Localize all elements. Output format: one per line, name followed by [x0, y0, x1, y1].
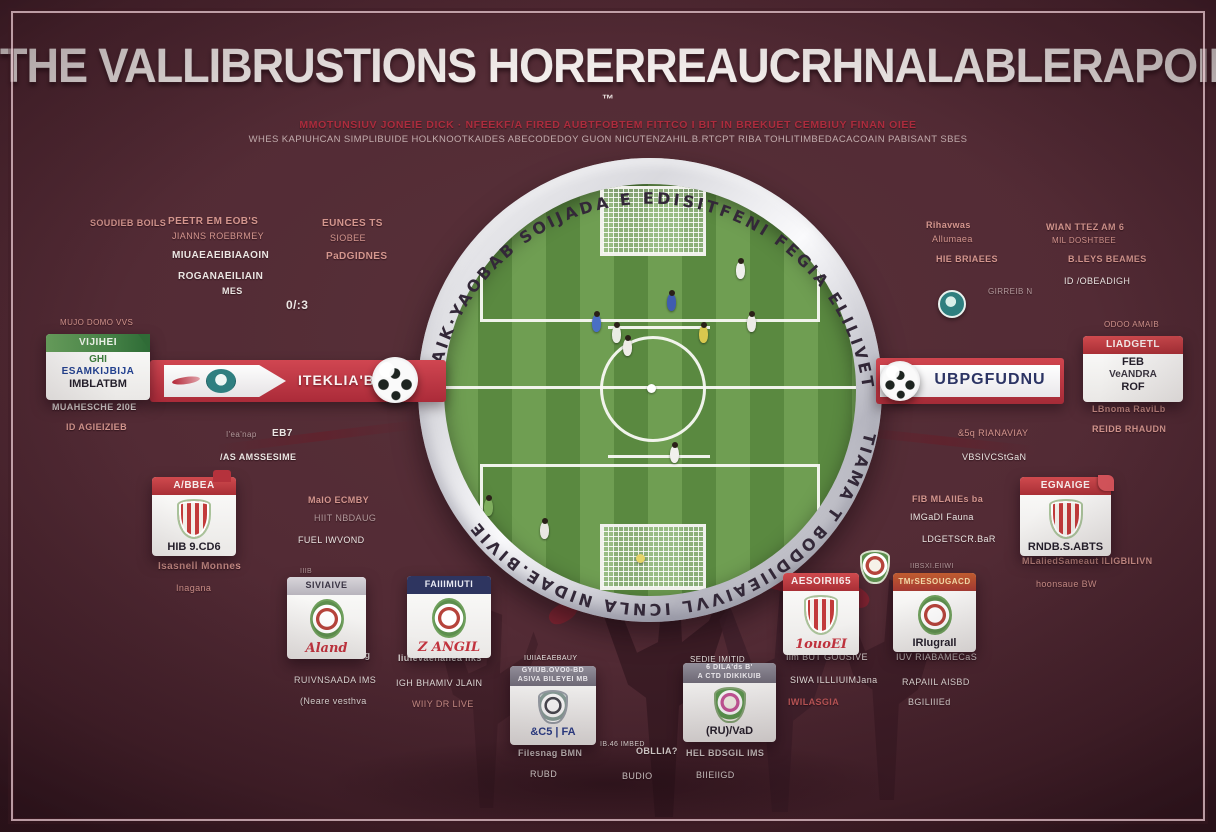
- card-header: VIJIHEI: [46, 334, 150, 352]
- card-faiiimiuti: FAIIIMIUTIZ ANGIL: [407, 576, 491, 658]
- poster-subtitle-gray: WHES KAPIUHCAN SIMPLIBUIDE HOLKNOOTKAIDE…: [0, 134, 1216, 145]
- card-aesoirii: AESOIRII651ouoEI: [783, 573, 859, 655]
- club-crest-icon: [177, 499, 211, 539]
- card-header-line: 6 DILA'ds B': [706, 664, 753, 673]
- trademark-symbol: ™: [602, 92, 614, 106]
- card-text-line: ROF: [1121, 381, 1144, 393]
- card-header-line: LIADGETL: [1106, 339, 1160, 352]
- card-header: 6 DILA'ds B'A CTD IDIKIKUIB: [683, 663, 776, 683]
- card-header: GYIUB.OVO0-BDASIVA BILEYEI MB: [510, 666, 596, 686]
- poster-title: THE VALLIBRUSTIONS HORERREAUCRHNALABLERA…: [0, 38, 1216, 94]
- card-dilads: 6 DILA'ds B'A CTD IDIKIKUIB(RU)/VaD: [683, 663, 776, 742]
- card-body: Z ANGIL: [407, 594, 491, 658]
- card-corner-fold: [213, 470, 231, 482]
- card-header-line: SIVIAIVE: [305, 580, 347, 591]
- card-body: IRIugraIl: [893, 591, 976, 652]
- card-body: (RU)/VaD: [683, 683, 776, 740]
- card-text-line: RNDB.S.ABTS: [1028, 541, 1103, 553]
- card-text-line: Z ANGIL: [418, 640, 480, 655]
- card-body: Aland: [287, 595, 366, 659]
- card-text-line: (RU)/VaD: [706, 725, 753, 737]
- card-body: &C5 | FA: [510, 686, 596, 741]
- card-siviaive: SIVIAIVEAland: [287, 577, 366, 659]
- club-crest-icon: [432, 598, 466, 638]
- card-text-line: VeANDRA: [1109, 369, 1157, 380]
- club-crest-icon: [714, 687, 746, 723]
- card-ajbea: A/BBEAHIB 9.CD6: [152, 477, 236, 556]
- card-header: FAIIIMIUTI: [407, 576, 491, 594]
- card-text-line: HIB 9.CD6: [167, 541, 220, 553]
- card-text-line: IRIugraIl: [912, 637, 956, 649]
- card-header-line: ASIVA BILEYEI MB: [518, 676, 589, 685]
- card-header: TMrSESOUGACD: [893, 573, 976, 591]
- poster-subtitle-red: MMOTUNSIUV JONEIE DICK · NFEEKF/A FIRED …: [0, 119, 1216, 131]
- card-corner-fold: [138, 334, 150, 350]
- card-header-line: GYIUB.OVO0-BD: [522, 667, 585, 676]
- card-text-line: IMBLATBM: [69, 378, 127, 390]
- card-body: 1ouoEI: [783, 591, 859, 655]
- card-header-line: A CTD IDIKIKUIB: [698, 673, 762, 682]
- card-vijihei: VIJIHEIGHIESAMKIJBIJAIMBLATBM: [46, 334, 150, 400]
- card-text-line: FEB: [1122, 356, 1144, 368]
- card-text-line: ESAMKIJBIJA: [62, 366, 135, 377]
- card-header-line: AESOIRII65: [791, 576, 851, 589]
- club-crest-icon: [538, 690, 568, 724]
- poster-page: THE VALLIBRUSTIONS HORERREAUCRHNALABLERA…: [0, 0, 1216, 832]
- club-crest-icon: [1049, 499, 1083, 539]
- card-header-line: EGNAIGE: [1041, 480, 1091, 493]
- card-header: AESOIRII65: [783, 573, 859, 591]
- card-header-line: A/BBEA: [173, 480, 214, 493]
- club-crest-icon: [918, 595, 952, 635]
- card-egnaige: EGNAIGERNDB.S.ABTS: [1020, 477, 1111, 556]
- card-text-line: 1ouoEI: [795, 637, 847, 652]
- card-corner-fold: [1098, 475, 1114, 491]
- card-header-line: VIJIHEI: [79, 337, 117, 350]
- card-text-line: Aland: [306, 641, 348, 656]
- card-gyiub: GYIUB.OVO0-BDASIVA BILEYEI MB&C5 | FA: [510, 666, 596, 745]
- card-body: RNDB.S.ABTS: [1020, 495, 1111, 556]
- card-header-line: TMrSESOUGACD: [898, 577, 970, 587]
- card-body: HIB 9.CD6: [152, 495, 236, 556]
- card-header-line: FAIIIMIUTI: [425, 579, 474, 590]
- card-text-line: &C5 | FA: [530, 726, 575, 738]
- club-crest-icon: [310, 599, 344, 639]
- card-body: GHIESAMKIJBIJAIMBLATBM: [46, 352, 150, 393]
- card-tmrsesougacd: TMrSESOUGACDIRIugraIl: [893, 573, 976, 652]
- card-header: SIVIAIVE: [287, 577, 366, 595]
- poster-header: THE VALLIBRUSTIONS HORERREAUCRHNALABLERA…: [0, 40, 1216, 145]
- card-header: LIADGETL: [1083, 336, 1183, 354]
- card-body: FEBVeANDRAROF: [1083, 354, 1183, 396]
- card-liadgetl: LIADGETLFEBVeANDRAROF: [1083, 336, 1183, 402]
- club-crest-icon: [804, 595, 838, 635]
- card-text-line: GHI: [89, 354, 107, 365]
